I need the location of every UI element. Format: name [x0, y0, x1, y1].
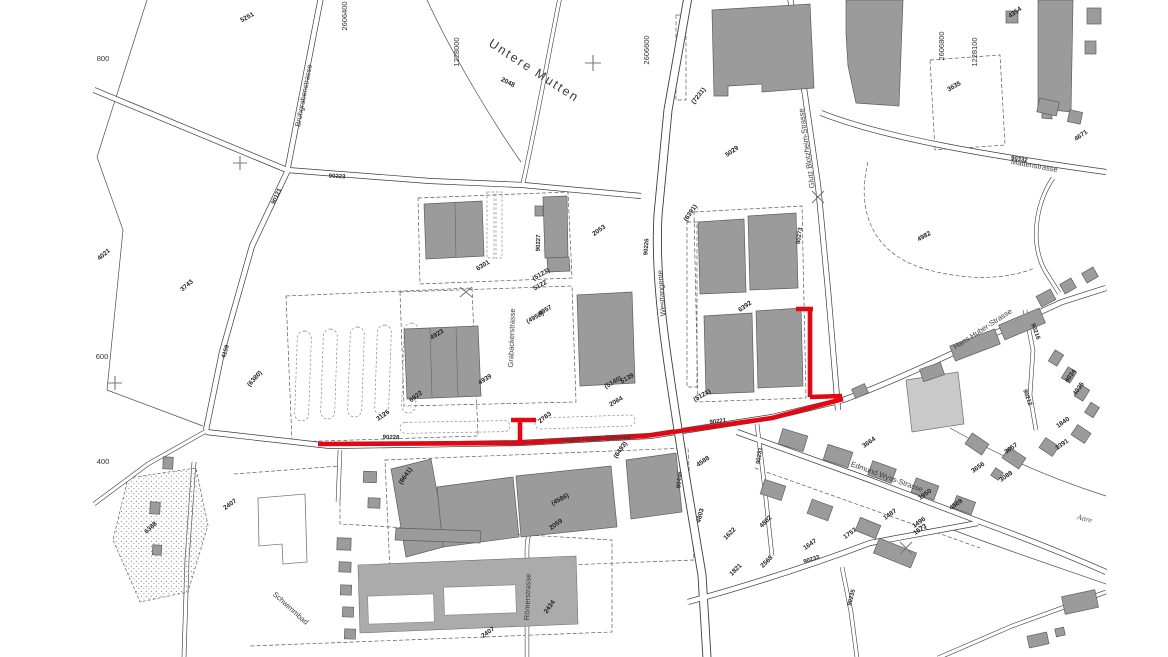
building	[404, 326, 481, 399]
road-casing	[206, 288, 1106, 446]
parcel-number: 1622	[722, 526, 737, 541]
cadastral-map-page: Untere MuttenBrühgrabenstrasseGlutz Blot…	[0, 0, 1168, 657]
building	[1067, 110, 1082, 124]
building	[1060, 278, 1077, 294]
parcel-number: (5121)	[692, 388, 712, 403]
building	[1085, 41, 1096, 54]
parcel-number: 4588	[695, 455, 711, 469]
road-surface	[206, 288, 1106, 446]
road-number: 90228	[383, 435, 401, 442]
coordinate-label: 1228000	[452, 37, 461, 66]
road-surface	[338, 450, 340, 502]
survey-cross	[585, 55, 601, 71]
coordinate-label: 2606600	[642, 35, 651, 64]
parcel-number: 1840	[1055, 416, 1071, 430]
road-casing	[94, 90, 641, 196]
cadastral-map-canvas: Untere MuttenBrühgrabenstrasseGlutz Blot…	[0, 0, 1168, 657]
road-number: 90223	[329, 174, 347, 181]
street-label: Römerstrasse	[522, 573, 533, 620]
building	[712, 4, 814, 96]
building	[965, 433, 989, 455]
parcel-boundary-dashed	[864, 162, 1035, 277]
parcel-number: 2407	[222, 498, 238, 512]
parcel-number: 2048	[500, 76, 516, 89]
parcel-number: 4802	[758, 514, 773, 529]
road-surface	[1036, 178, 1059, 293]
building	[547, 257, 570, 272]
building	[163, 457, 174, 470]
parcel-number: 1487	[882, 508, 898, 522]
parcel-boundary-dashed	[687, 222, 697, 387]
building-outline	[258, 494, 307, 564]
parcel-number: 5251	[239, 11, 255, 24]
parcel-number: 4021	[96, 247, 112, 262]
building	[395, 528, 481, 543]
parcel-number: 6301	[475, 259, 491, 273]
road-number: 90446	[676, 471, 683, 489]
building	[704, 313, 754, 394]
road-casing	[821, 113, 1106, 172]
street-label: Brühgrabenstrasse	[293, 64, 314, 128]
building	[855, 517, 881, 538]
road-number: 90227	[536, 234, 543, 252]
coordinate-label: 1228100	[970, 37, 979, 66]
parcel-number: (6380)	[246, 370, 264, 389]
survey-cross	[108, 376, 122, 390]
parcel-number: (6493)	[613, 440, 630, 459]
parcel-number: 1647	[802, 538, 818, 552]
buildings-layer	[150, 0, 1101, 648]
parcel-number: 4803	[695, 507, 706, 523]
parcel-number: 4671	[1073, 129, 1089, 143]
building	[1027, 632, 1049, 648]
building	[577, 292, 635, 386]
parcel-boundary	[97, 0, 147, 157]
parcel-number: 3656	[970, 461, 986, 475]
parcel-number: 3125	[375, 409, 391, 423]
building	[698, 219, 746, 294]
parcel-number: 5029	[724, 145, 740, 159]
building	[340, 585, 351, 595]
building	[516, 466, 617, 537]
building	[1055, 627, 1065, 637]
building	[1062, 590, 1099, 615]
parcel-number: 1821	[728, 562, 743, 577]
building	[342, 607, 353, 617]
building	[344, 629, 355, 639]
parcel-number: 2783	[537, 410, 553, 425]
coordinate-label: 800	[97, 54, 110, 63]
road-number: 90226	[643, 238, 650, 256]
coordinate-label: 600	[96, 352, 109, 361]
parcel-number: (7231)	[690, 87, 707, 106]
building	[368, 498, 380, 508]
parcel-number: 3635	[946, 80, 962, 93]
building	[846, 0, 903, 106]
gravel-area	[113, 468, 208, 602]
coordinate-label: 400	[97, 457, 110, 466]
water-label: Aare	[1075, 512, 1093, 525]
parcel-number: 2053	[591, 224, 607, 238]
street-label: Westtangente	[655, 270, 667, 317]
parcel-boundary	[107, 390, 203, 426]
road-surface	[94, 90, 641, 196]
parcel-number: 1391	[1054, 438, 1070, 452]
building	[391, 459, 447, 557]
swimming-pool	[368, 594, 435, 624]
parcel-number: 3743	[179, 278, 195, 293]
parcel-number: (4958)	[525, 310, 545, 325]
parcel-number: 6392	[737, 300, 753, 314]
building	[339, 562, 351, 572]
road-surface	[842, 567, 857, 657]
street-label: Grabackerstrasse	[506, 308, 517, 367]
building	[337, 538, 351, 550]
parcel-number: 4982	[916, 230, 932, 243]
building	[1082, 267, 1099, 283]
parcel-number: 2568	[759, 554, 774, 569]
coordinate-label: 2606400	[340, 1, 349, 30]
building	[535, 206, 543, 216]
coordinate-label: 2606800	[937, 31, 946, 60]
building	[424, 201, 484, 259]
area-label: Untere Mutten	[486, 36, 582, 105]
street-label: Schwimmbad	[271, 590, 310, 627]
building	[150, 502, 161, 515]
survey-cross	[233, 156, 247, 170]
building	[363, 471, 376, 482]
parcel-boundary-dashed	[930, 55, 1005, 150]
building	[543, 196, 568, 258]
building	[152, 545, 162, 555]
parcel-number: 3664	[861, 436, 877, 450]
swimming-pool	[444, 585, 517, 615]
building	[906, 372, 964, 432]
building	[748, 213, 798, 290]
building	[1087, 8, 1101, 24]
building	[626, 453, 682, 519]
building	[873, 538, 916, 568]
building	[756, 308, 803, 388]
parcel-number: (6391)	[683, 203, 700, 222]
parcel-number: 2064	[608, 395, 624, 408]
building	[1048, 350, 1063, 366]
building	[1085, 402, 1100, 417]
road-casing	[206, 0, 321, 430]
building	[807, 499, 833, 521]
building	[1071, 425, 1091, 444]
